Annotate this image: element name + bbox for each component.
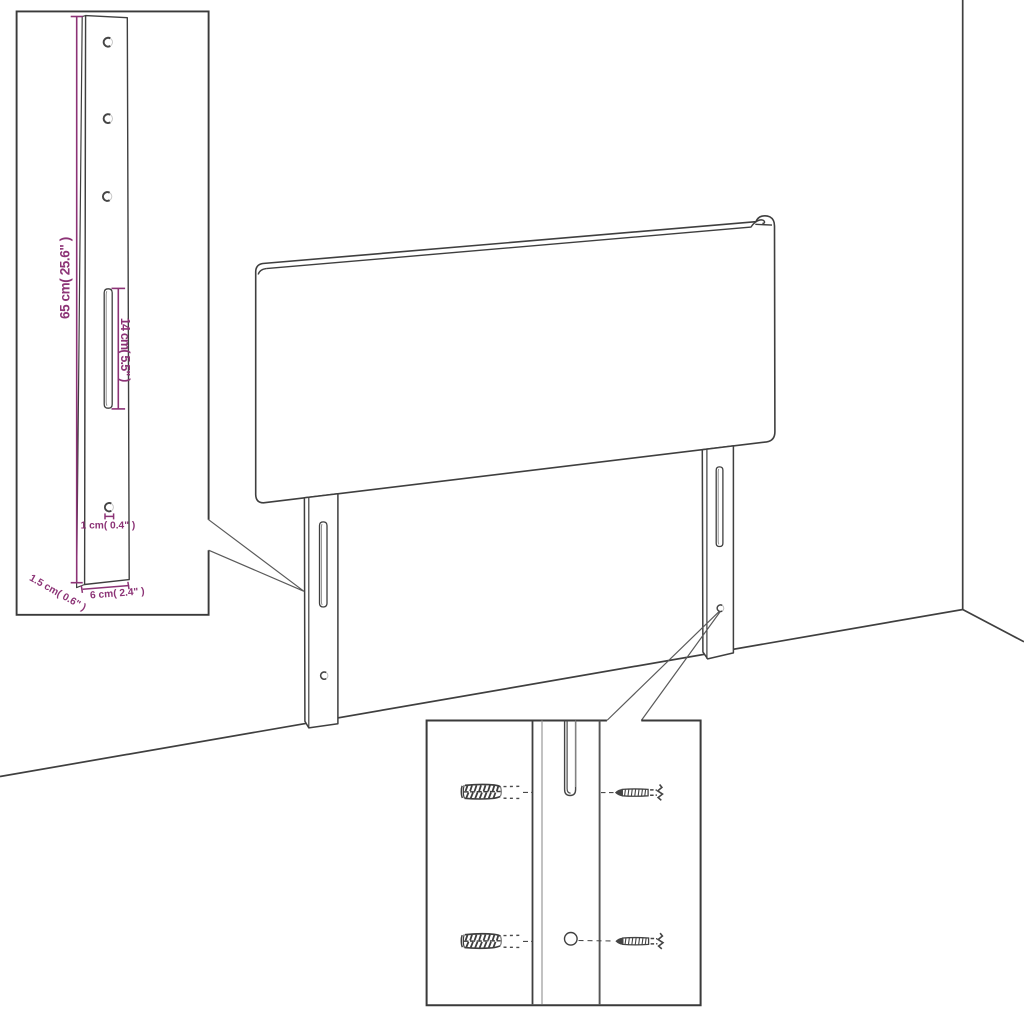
- svg-text:65 cm( 25.6" ): 65 cm( 25.6" ): [58, 237, 73, 319]
- svg-text:14 cm( 5.5" ): 14 cm( 5.5" ): [118, 318, 132, 382]
- svg-text:1 cm( 0.4" ): 1 cm( 0.4" ): [81, 521, 136, 532]
